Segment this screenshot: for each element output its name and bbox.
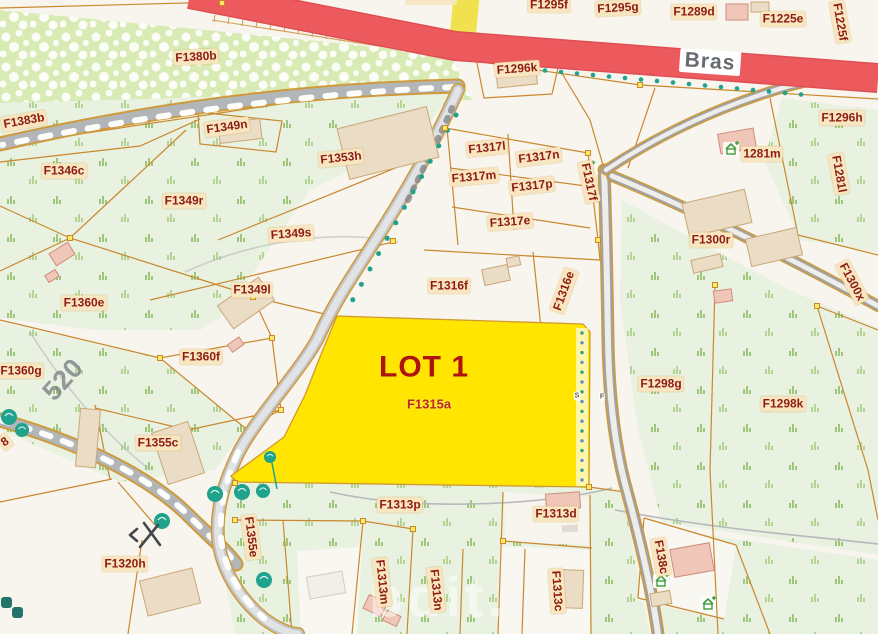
- parcel-label-F1298k[interactable]: F1298k: [761, 397, 806, 412]
- tree-dot-icon: [580, 449, 583, 452]
- tree-icon: [256, 484, 270, 498]
- tree-dot-icon: [703, 83, 708, 88]
- tree-dot-icon: [591, 73, 596, 78]
- parcel-label-F1289d[interactable]: F1289d: [671, 5, 716, 20]
- tree-dot-icon: [580, 380, 583, 383]
- parcel-label-F1360g[interactable]: F1360g: [0, 364, 44, 379]
- tree-dot-icon: [580, 429, 583, 432]
- parcel-label-F1225e[interactable]: F1225e: [761, 12, 806, 27]
- tree-dot-icon: [580, 420, 583, 423]
- tree-dot-icon: [559, 70, 564, 75]
- parcel-label-1281m[interactable]: 1281m: [741, 147, 782, 162]
- tree-dot-icon: [402, 205, 407, 210]
- tree-dot-icon: [543, 68, 548, 73]
- tree-dot-icon: [767, 89, 772, 94]
- parcel-label-F1296h[interactable]: F1296h: [819, 111, 864, 126]
- parcel-label-F1360f[interactable]: F1360f: [180, 350, 222, 365]
- parcel-label-F1298g[interactable]: F1298g: [638, 377, 683, 392]
- parcel-label-F1313p[interactable]: F1313p: [377, 498, 422, 513]
- tree-dot-icon: [580, 410, 583, 413]
- tree-icon: [1, 597, 12, 608]
- tree-dot-icon: [436, 143, 441, 148]
- tree-icon: [234, 484, 250, 500]
- parcel-label-F1380b[interactable]: F1380b: [173, 48, 219, 65]
- tree-dot-icon: [751, 88, 756, 93]
- parcel-label-F1320h[interactable]: F1320h: [102, 557, 147, 572]
- tree-dot-icon: [655, 79, 660, 84]
- tree-icon: [12, 607, 23, 618]
- tree-dot-icon: [385, 236, 390, 241]
- tree-dot-icon: [783, 91, 788, 96]
- tree-dot-icon: [580, 351, 583, 354]
- cadastral-map: Bras 520 LOT 1 F1315a bdit. F1295fF1295g…: [0, 0, 878, 634]
- tree-dot-icon: [419, 174, 424, 179]
- tree-icon: [264, 451, 276, 463]
- tree-dot-icon: [719, 85, 724, 90]
- house-plus-icon: [700, 596, 716, 611]
- parcel-label-F1349r[interactable]: F1349r: [163, 194, 206, 209]
- cut-label-sliver: [405, 0, 457, 5]
- tree-dot-icon: [580, 331, 583, 334]
- tree-icon: [15, 423, 29, 437]
- grass-area-sw: [0, 322, 245, 482]
- parcel-label-F1313d[interactable]: F1313d: [533, 507, 578, 522]
- tree-dot-icon: [799, 92, 804, 97]
- tree-dot-icon: [687, 82, 692, 87]
- tree-dot-icon: [671, 80, 676, 85]
- tree-dot-icon: [454, 113, 459, 118]
- tree-icon: [256, 572, 272, 588]
- tree-dot-icon: [368, 267, 373, 272]
- tree-dot-icon: [428, 159, 433, 164]
- tree-dot-icon: [580, 439, 583, 442]
- tree-dot-icon: [639, 77, 644, 82]
- tree-dot-icon: [623, 76, 628, 81]
- tree-icon: [207, 486, 223, 502]
- tree-dot-icon: [607, 74, 612, 79]
- map-canvas: [0, 0, 878, 634]
- lot-parcel-id[interactable]: F1315a: [405, 397, 453, 412]
- lot-title[interactable]: LOT 1: [377, 360, 471, 375]
- tree-dot-icon: [580, 400, 583, 403]
- house-plus-icon: [723, 141, 739, 156]
- tree-icon: [1, 409, 17, 425]
- parcel-label-F1300r[interactable]: F1300r: [690, 233, 733, 248]
- parcel-label-F1355c[interactable]: F1355c: [136, 436, 181, 451]
- tree-dot-icon: [580, 459, 583, 462]
- tree-dot-icon: [580, 361, 583, 364]
- tree-dot-icon: [575, 71, 580, 76]
- parcel-label-F[interactable]: F: [599, 393, 605, 402]
- parcel-label-F1296k[interactable]: F1296k: [494, 60, 540, 78]
- parcel-label-F1349s[interactable]: F1349s: [268, 225, 314, 243]
- tree-dot-icon: [411, 190, 416, 195]
- parcel-label-F1317e[interactable]: F1317e: [487, 213, 533, 231]
- tree-dot-icon: [393, 220, 398, 225]
- windmill-icon: [130, 523, 160, 547]
- parcel-label-F1349l[interactable]: F1349l: [231, 283, 272, 298]
- tree-dot-icon: [359, 282, 364, 287]
- tree-dot-icon: [350, 297, 355, 302]
- tree-dot-icon: [376, 251, 381, 256]
- parcel-label-F1360e[interactable]: F1360e: [62, 296, 107, 311]
- parcel-label-F1313c[interactable]: F1313c: [548, 568, 566, 614]
- tree-dot-icon: [580, 469, 583, 472]
- parcel-label-F1346c[interactable]: F1346c: [42, 164, 87, 179]
- tree-dot-icon: [580, 341, 583, 344]
- parcel-label-F1295f[interactable]: F1295f: [528, 0, 570, 13]
- road-name-bras: Bras: [679, 48, 741, 76]
- parcel-label-F1316f[interactable]: F1316f: [428, 279, 470, 294]
- tree-dot-icon: [580, 478, 583, 481]
- tree-dot-icon: [580, 390, 583, 393]
- tree-dot-icon: [580, 371, 583, 374]
- parcel-label-S[interactable]: S: [574, 392, 581, 401]
- parcel-label-F1295g[interactable]: F1295g: [595, 0, 641, 17]
- tree-dot-icon: [735, 86, 740, 91]
